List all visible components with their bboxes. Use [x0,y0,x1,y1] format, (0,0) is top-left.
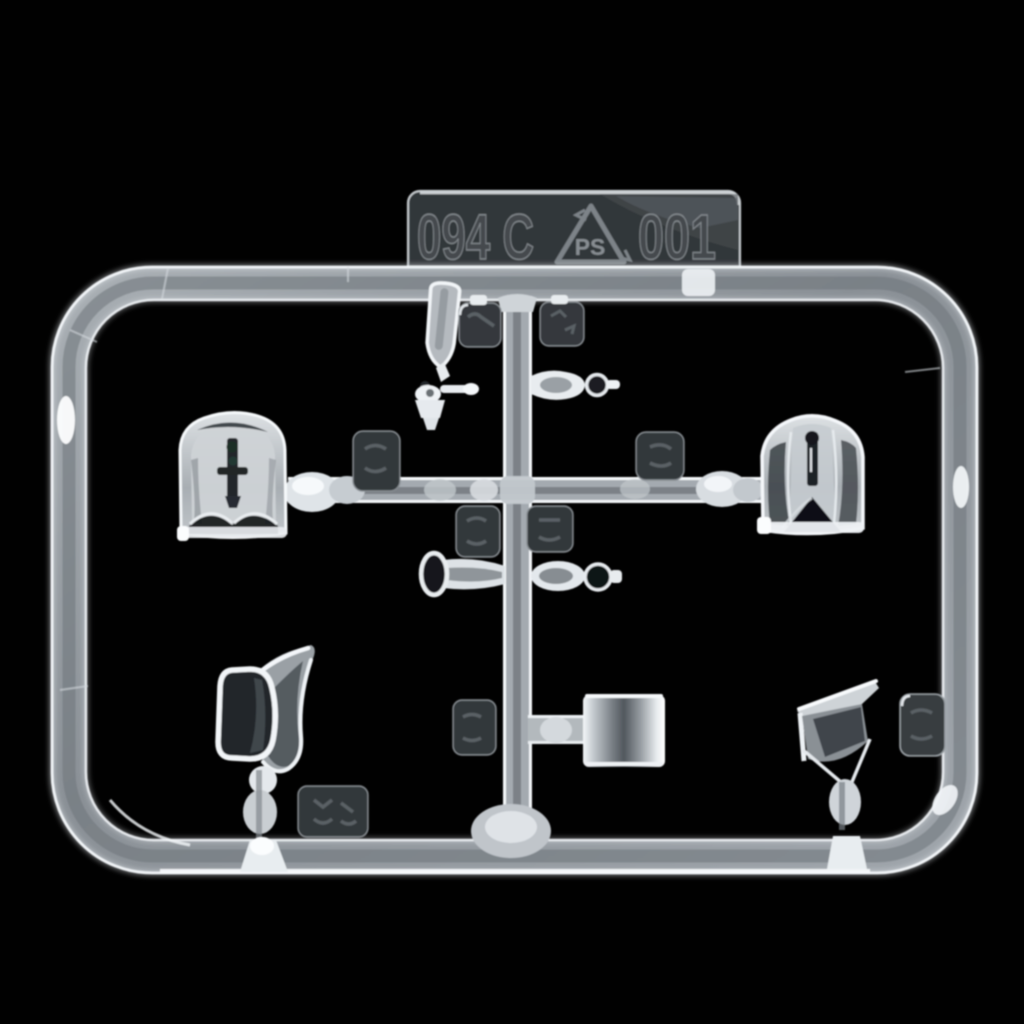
svg-text:PS: PS [575,234,606,260]
svg-text:094 C: 094 C [417,201,534,273]
svg-text:001: 001 [638,201,716,273]
